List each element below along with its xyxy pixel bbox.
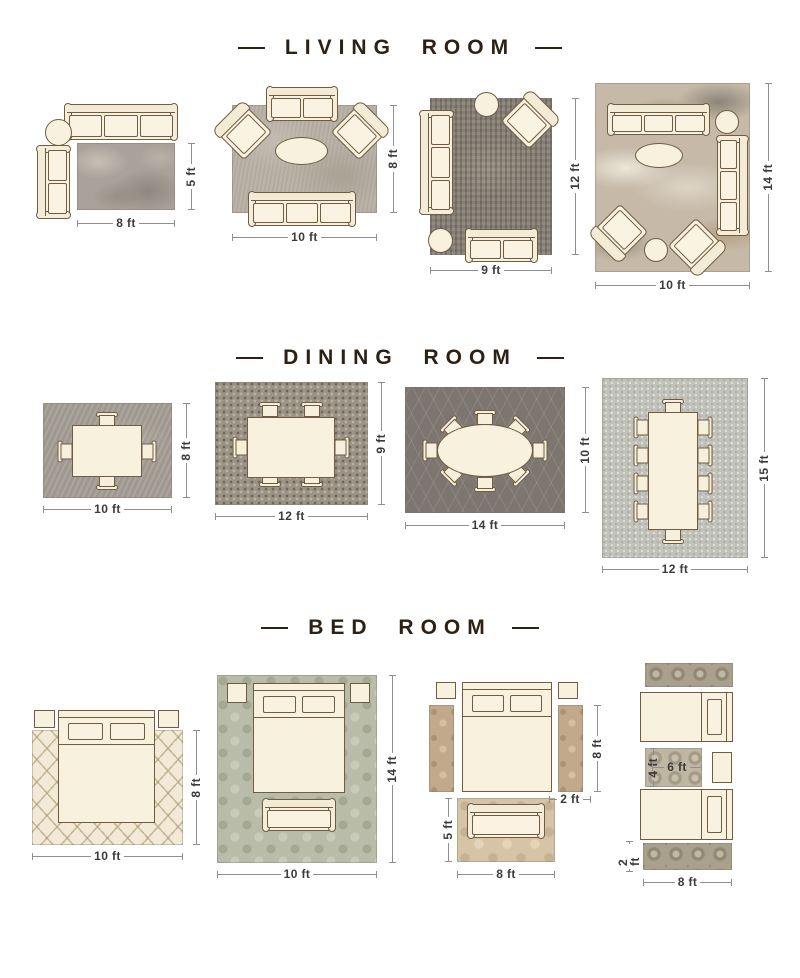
- sofa-three-seat-vertical: [717, 137, 748, 234]
- oval-coffee-table: [635, 143, 683, 168]
- round-ottoman: [644, 238, 668, 262]
- bed: [253, 683, 345, 793]
- runner-width-dimension: 2 ft: [549, 793, 591, 805]
- pillow: [707, 699, 722, 736]
- title-dash-left: [238, 47, 265, 49]
- title-dash-left: [236, 357, 263, 359]
- rug-width-dimension: 10 ft: [43, 503, 172, 515]
- dining-chair-top-1: [259, 402, 281, 417]
- dining-chair-right: [533, 440, 548, 462]
- rug-width-dimension: 10 ft: [595, 279, 750, 291]
- dining-chair-right-4: [698, 501, 713, 523]
- rug-height-dimension: 8 ft: [189, 730, 203, 845]
- runner-width-dimension: 8 ft: [643, 876, 732, 888]
- living-room-section-title: LIVING ROOM: [0, 36, 800, 60]
- title-dash-right: [535, 47, 562, 49]
- chaise-two-seat: [37, 147, 70, 217]
- dining-chair-bottom: [474, 477, 496, 492]
- pillow: [110, 723, 145, 740]
- dining-chair-left: [233, 437, 248, 459]
- nightstand-right: [350, 683, 370, 703]
- rug-width-dimension: 12 ft: [602, 563, 748, 575]
- nightstand-right: [558, 682, 578, 699]
- rug-width-dimension: 14 ft: [405, 519, 565, 531]
- bench-loveseat: [469, 804, 543, 838]
- oval-coffee-table: [275, 137, 328, 165]
- round-side-table: [45, 119, 72, 146]
- rug-height-dimension: 8 ft: [179, 403, 193, 498]
- sofa-three-seat: [250, 192, 354, 226]
- title-dash-left: [261, 627, 288, 629]
- nightstand-right: [158, 710, 179, 728]
- dining-chair-right: [335, 437, 350, 459]
- round-side-table: [474, 92, 499, 117]
- sofa-three-seat-vertical: [420, 112, 453, 213]
- runner-rug-right: [558, 705, 583, 792]
- rug-height-dimension: 14 ft: [761, 83, 775, 272]
- dining-table: [247, 417, 335, 478]
- dining-chair-head-bottom: [662, 529, 684, 544]
- dining-chair-right: [142, 441, 157, 463]
- dining-room-section-title: DINING ROOM: [0, 346, 800, 370]
- pillow: [263, 696, 296, 713]
- runner-length-dimension: 8 ft: [590, 705, 604, 792]
- twin-bed-top: [640, 692, 733, 742]
- runner-rug-bottom: [643, 843, 732, 870]
- runner-rug-top: [645, 663, 733, 687]
- runner-height-dimension: 2 ft: [622, 841, 636, 872]
- bench-rug-height-dimension: 5 ft: [441, 798, 455, 862]
- foot-bench: [264, 799, 334, 831]
- sofa-three-seat: [66, 104, 176, 140]
- oval-dining-table: [437, 424, 533, 477]
- nightstand-left: [34, 710, 55, 728]
- title-dash-right: [512, 627, 539, 629]
- dining-chair-left-4: [634, 501, 649, 523]
- dining-chair-left: [58, 441, 73, 463]
- nightstand-left: [436, 682, 456, 699]
- dining-chair-right-3: [698, 473, 713, 495]
- dining-chair-right-2: [698, 445, 713, 467]
- pillow: [707, 796, 722, 833]
- dining-chair-left-2: [634, 445, 649, 467]
- bed: [58, 710, 155, 823]
- dining-chair-left: [423, 440, 438, 462]
- section-title-text: LIVING ROOM: [285, 36, 515, 60]
- dining-chair-left-1: [634, 417, 649, 439]
- rug-height-dimension: 9 ft: [374, 382, 388, 505]
- rug-height-dimension: 10 ft: [578, 387, 592, 513]
- section-title-text: BED ROOM: [308, 616, 492, 640]
- rug-width-dimension: 9 ft: [430, 264, 552, 276]
- dining-chair-right-1: [698, 417, 713, 439]
- rug-width-dimension: 10 ft: [32, 850, 183, 862]
- nightstand-between-beds: [712, 752, 732, 783]
- rug-height-dimension: 8 ft: [386, 105, 400, 213]
- section-title-text: DINING ROOM: [283, 346, 517, 370]
- sofa-three-seat: [609, 104, 708, 135]
- nightstand-left: [227, 683, 247, 703]
- runner-rug-left: [429, 705, 454, 792]
- accent-rug-width-dimension: 6 ft: [652, 761, 702, 773]
- rug-width-dimension: 8 ft: [77, 217, 175, 229]
- rug-height-dimension: 15 ft: [757, 378, 771, 558]
- pillow: [68, 723, 103, 740]
- round-side-table: [715, 110, 739, 134]
- dining-table-long: [648, 412, 698, 530]
- twin-bed-bottom: [640, 789, 733, 840]
- dining-table: [72, 425, 142, 477]
- rug-height-dimension: 12 ft: [568, 98, 582, 255]
- pillow: [302, 696, 335, 713]
- title-dash-right: [537, 357, 564, 359]
- rug-size-guide-infographic: LIVING ROOM 8 ft 5 ft: [0, 0, 800, 978]
- round-ottoman: [428, 228, 453, 253]
- bed: [462, 682, 552, 792]
- rug-height-dimension: 14 ft: [385, 675, 399, 863]
- rug-width-dimension: 12 ft: [215, 510, 368, 522]
- dining-chair-left-3: [634, 473, 649, 495]
- dining-chair-bottom: [96, 475, 118, 490]
- bed-room-section-title: BED ROOM: [0, 616, 800, 640]
- dining-chair-top-2: [301, 402, 323, 417]
- bench-rug-width-dimension: 8 ft: [457, 868, 555, 880]
- rug-width-dimension: 10 ft: [232, 231, 377, 243]
- loveseat-two-seat: [467, 229, 536, 262]
- rug-height-dimension: 5 ft: [184, 143, 198, 210]
- rug-width-dimension: 10 ft: [217, 868, 377, 880]
- pillow: [510, 695, 542, 712]
- loveseat-two-seat: [268, 87, 336, 121]
- dining-chair-top: [474, 410, 496, 425]
- pillow: [472, 695, 504, 712]
- rug-8x5: [77, 143, 175, 210]
